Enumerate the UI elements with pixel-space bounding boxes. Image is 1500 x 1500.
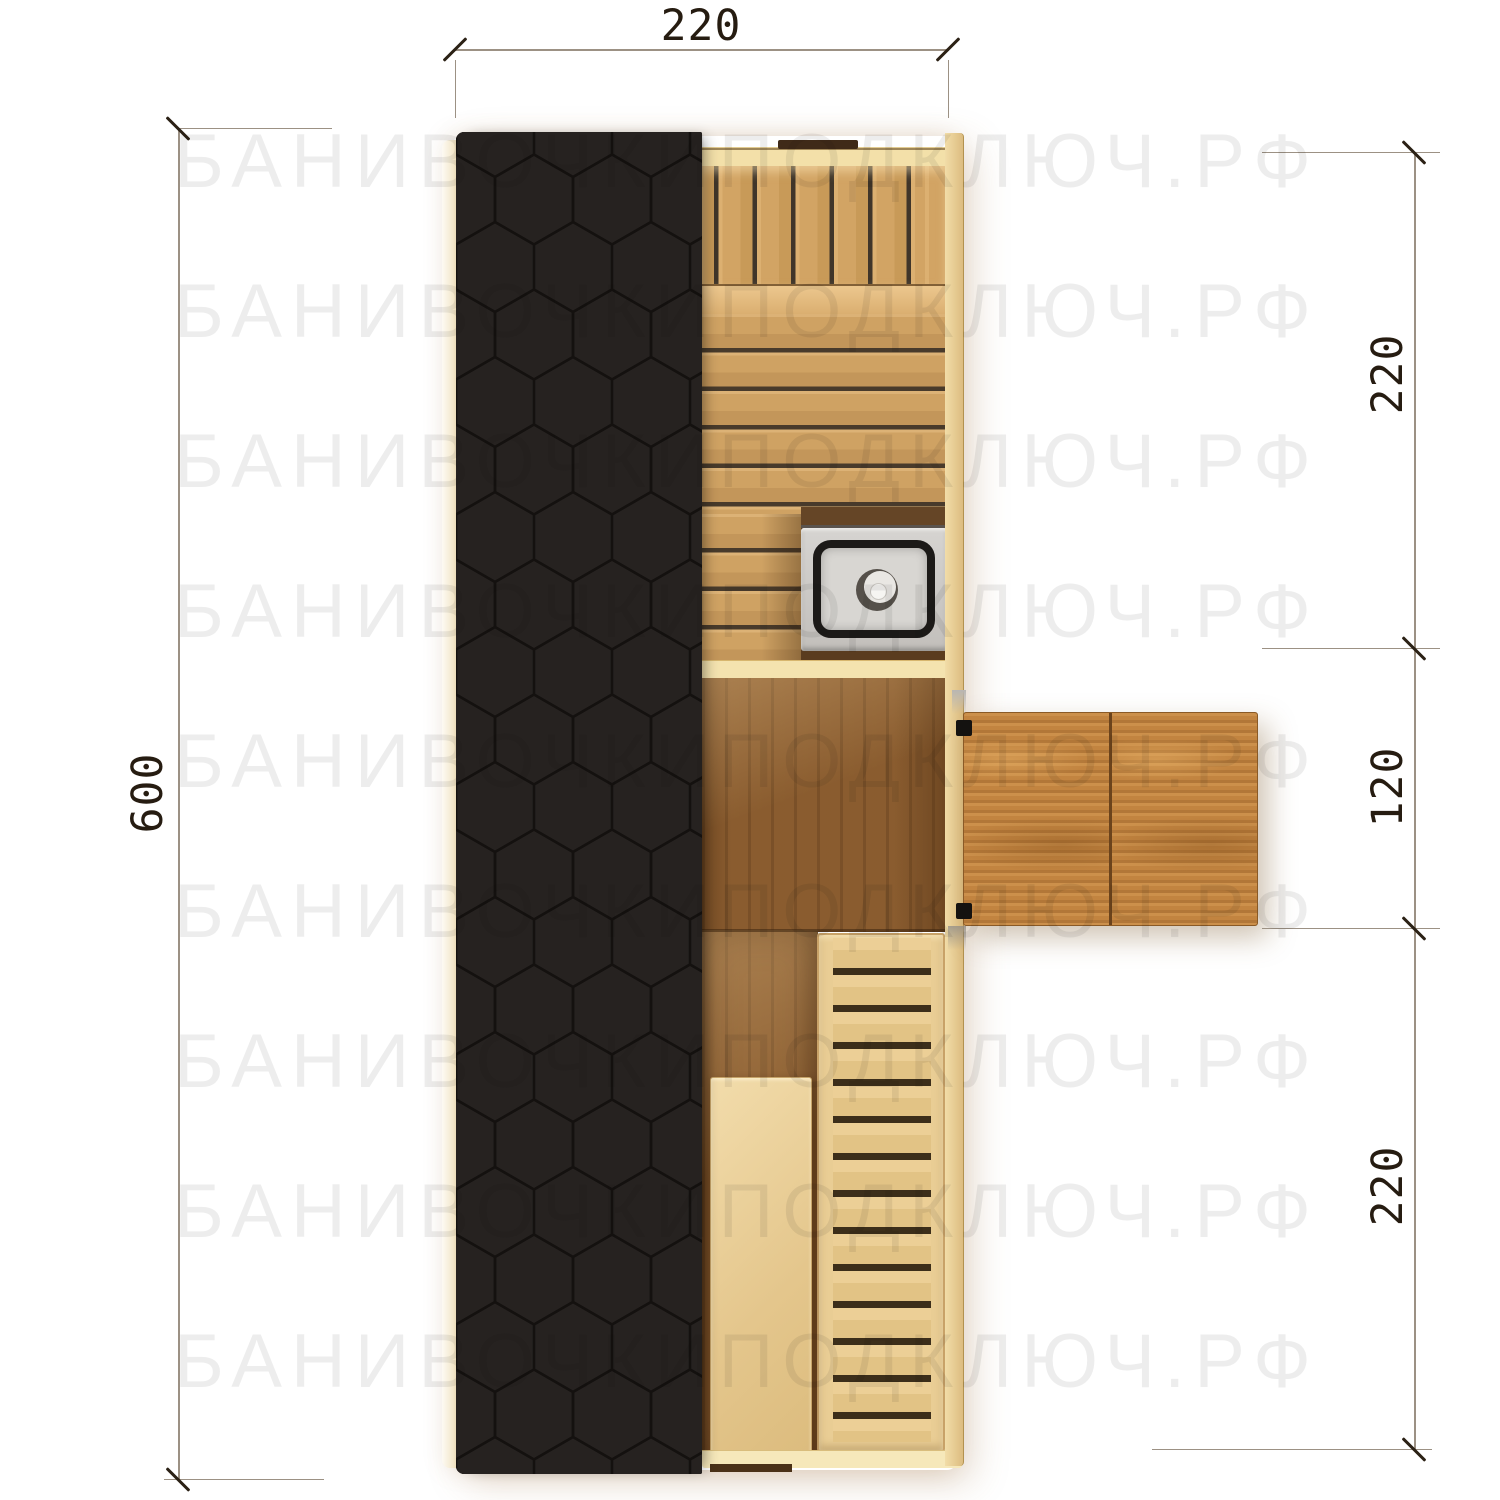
- steam-room-floor-left: [702, 514, 801, 662]
- chimney-pipe: [856, 569, 898, 611]
- porch-deck: [963, 712, 1258, 926]
- porch-panel-left: [964, 713, 1109, 925]
- duckboard-floor: [817, 933, 945, 1452]
- roof-shingles: [456, 132, 702, 1474]
- top-wall: [702, 147, 947, 168]
- dim-label-top-width: 220: [661, 1, 742, 51]
- ext-line-top-right: [948, 60, 949, 118]
- partition-wall: [702, 660, 947, 679]
- duckboard-slats: [833, 938, 931, 1442]
- dim-label-right-upper: 220: [1363, 334, 1413, 415]
- dim-label-right-lower: 220: [1363, 1146, 1413, 1227]
- dim-line-left: [178, 128, 180, 1479]
- room-divider-line: [702, 929, 947, 932]
- door-opening-shadow-bottom: [948, 926, 966, 950]
- door-hinge-top: [956, 720, 972, 736]
- dim-label-right-middle: 120: [1363, 747, 1413, 828]
- floor-plan-canvas: 220 600 220 120 220 БАНИВОЧКИПОДКЛЮЧ.РФБ…: [0, 0, 1500, 1500]
- rest-room-floor: [702, 678, 947, 932]
- porch-panel-right: [1112, 713, 1257, 925]
- ext-line-left-top: [178, 128, 332, 129]
- steam-room-bench-edge: [702, 284, 947, 318]
- window-vent: [778, 140, 858, 149]
- chimney-cap: [870, 583, 887, 600]
- steam-room-floor: [702, 314, 947, 514]
- door-hinge-bottom: [956, 903, 972, 919]
- porch-panel-divider: [1109, 713, 1112, 925]
- hex-shingle-pattern: [456, 132, 702, 1474]
- ext-line-top-left: [455, 60, 456, 118]
- ext-line-right-4: [1152, 1449, 1432, 1450]
- ext-line-left-bottom: [164, 1479, 324, 1480]
- threshold-step: [710, 1464, 792, 1472]
- right-wall: [945, 133, 964, 1466]
- dim-line-right: [1414, 152, 1416, 1449]
- door-opening-shadow-top: [952, 690, 966, 714]
- dim-label-left-height: 600: [123, 753, 173, 834]
- washroom-bench: [710, 1077, 812, 1454]
- steam-room-bench: [702, 166, 947, 284]
